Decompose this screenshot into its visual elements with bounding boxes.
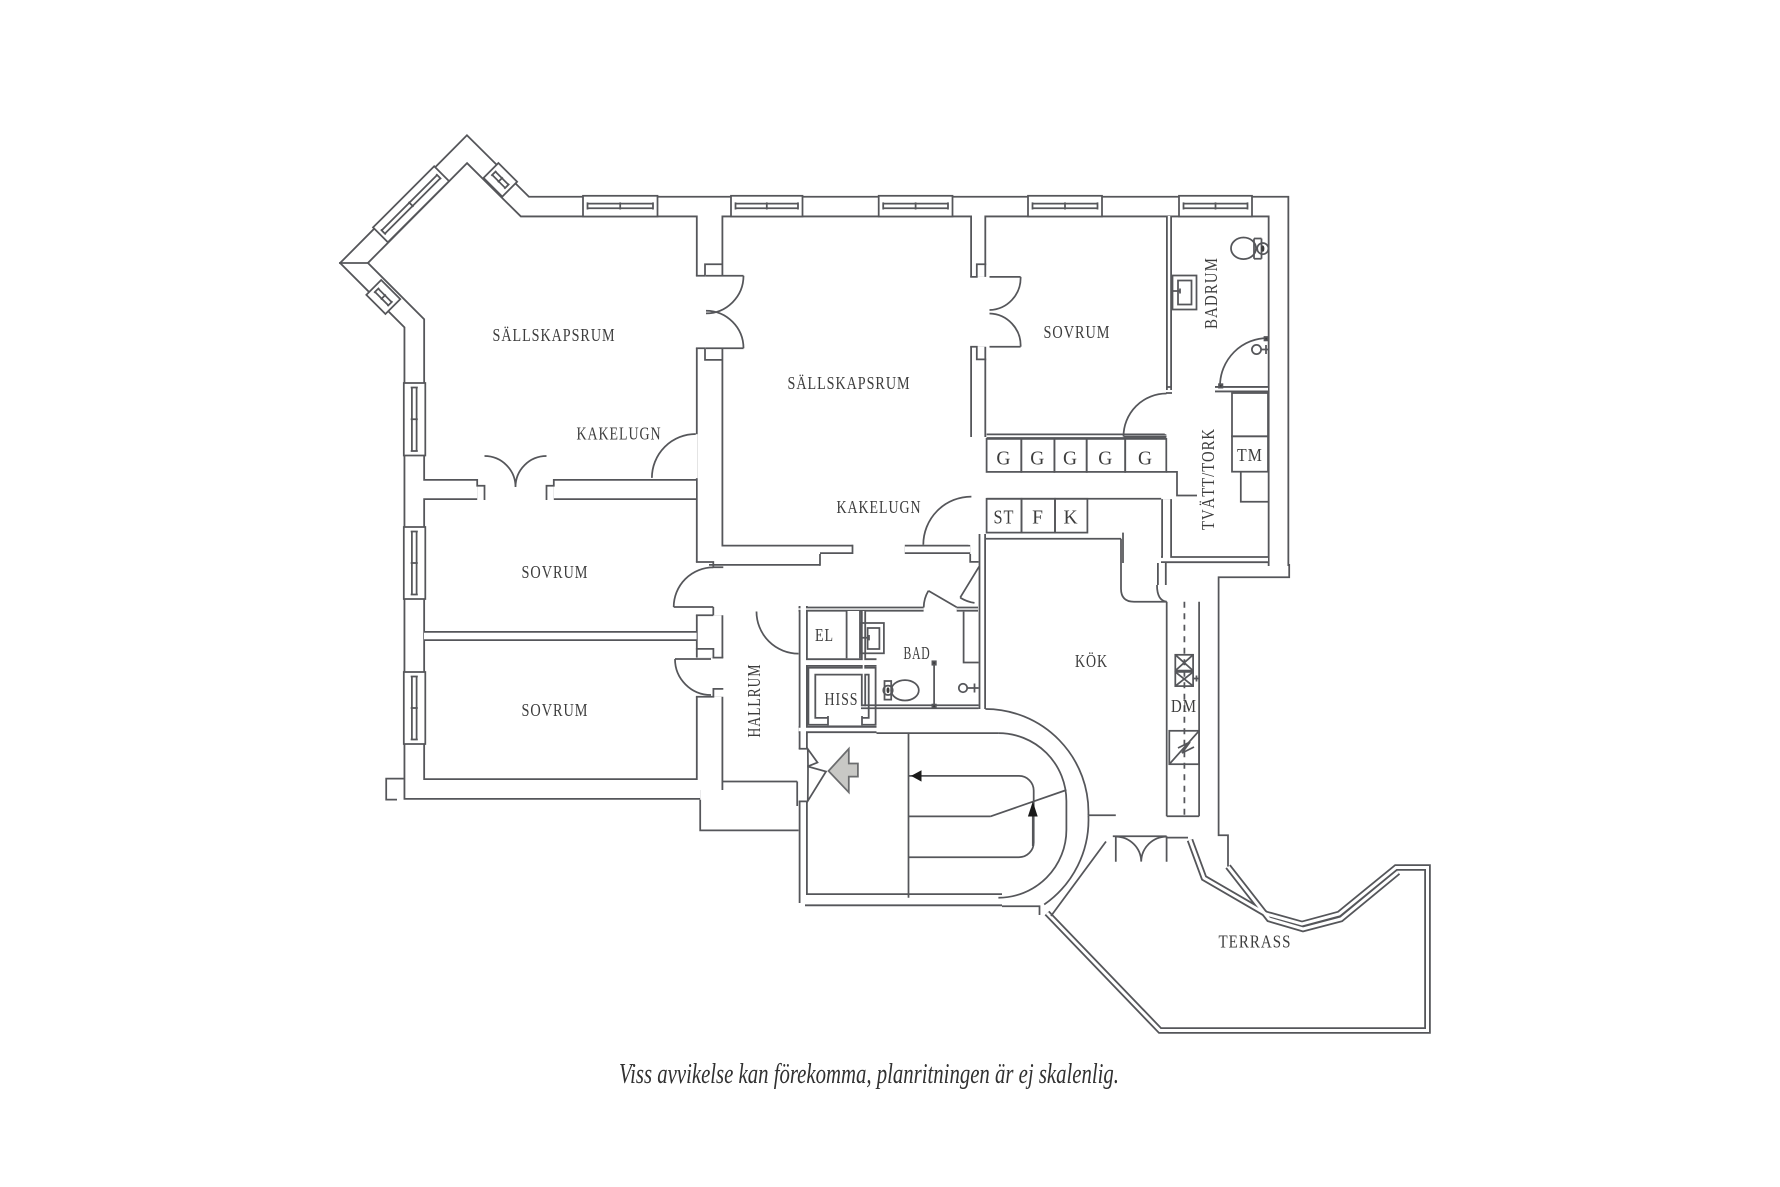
svg-text:G: G bbox=[996, 449, 1011, 470]
svg-text:BADRUM: BADRUM bbox=[1201, 257, 1221, 329]
svg-text:SOVRUM: SOVRUM bbox=[522, 562, 589, 582]
svg-text:HISS: HISS bbox=[825, 689, 859, 709]
svg-text:KAKELUGN: KAKELUGN bbox=[837, 497, 922, 517]
svg-text:SOVRUM: SOVRUM bbox=[1044, 322, 1111, 342]
svg-text:TM: TM bbox=[1237, 445, 1263, 465]
svg-text:G: G bbox=[1098, 449, 1113, 470]
svg-text:KÖK: KÖK bbox=[1075, 651, 1108, 671]
svg-text:KAKELUGN: KAKELUGN bbox=[577, 424, 662, 444]
svg-text:TVÄTT/TORK: TVÄTT/TORK bbox=[1198, 428, 1218, 530]
svg-text:HALLRUM: HALLRUM bbox=[744, 664, 764, 738]
svg-text:SOVRUM: SOVRUM bbox=[522, 700, 589, 720]
svg-text:TERRASS: TERRASS bbox=[1219, 932, 1292, 952]
svg-text:Viss avvikelse kan förekomma,: Viss avvikelse kan förekomma, planritnin… bbox=[619, 1058, 1119, 1090]
svg-text:G: G bbox=[1030, 449, 1045, 470]
svg-text:K: K bbox=[1064, 508, 1079, 529]
svg-text:F: F bbox=[1032, 508, 1044, 529]
svg-text:G: G bbox=[1063, 449, 1078, 470]
svg-text:SÄLLSKAPSRUM: SÄLLSKAPSRUM bbox=[788, 373, 911, 393]
svg-text:G: G bbox=[1138, 449, 1153, 470]
svg-text:DM: DM bbox=[1171, 696, 1197, 716]
svg-text:SÄLLSKAPSRUM: SÄLLSKAPSRUM bbox=[493, 325, 616, 345]
svg-text:ST: ST bbox=[994, 508, 1015, 529]
svg-text:EL: EL bbox=[815, 625, 834, 645]
svg-text:BAD: BAD bbox=[904, 643, 931, 663]
